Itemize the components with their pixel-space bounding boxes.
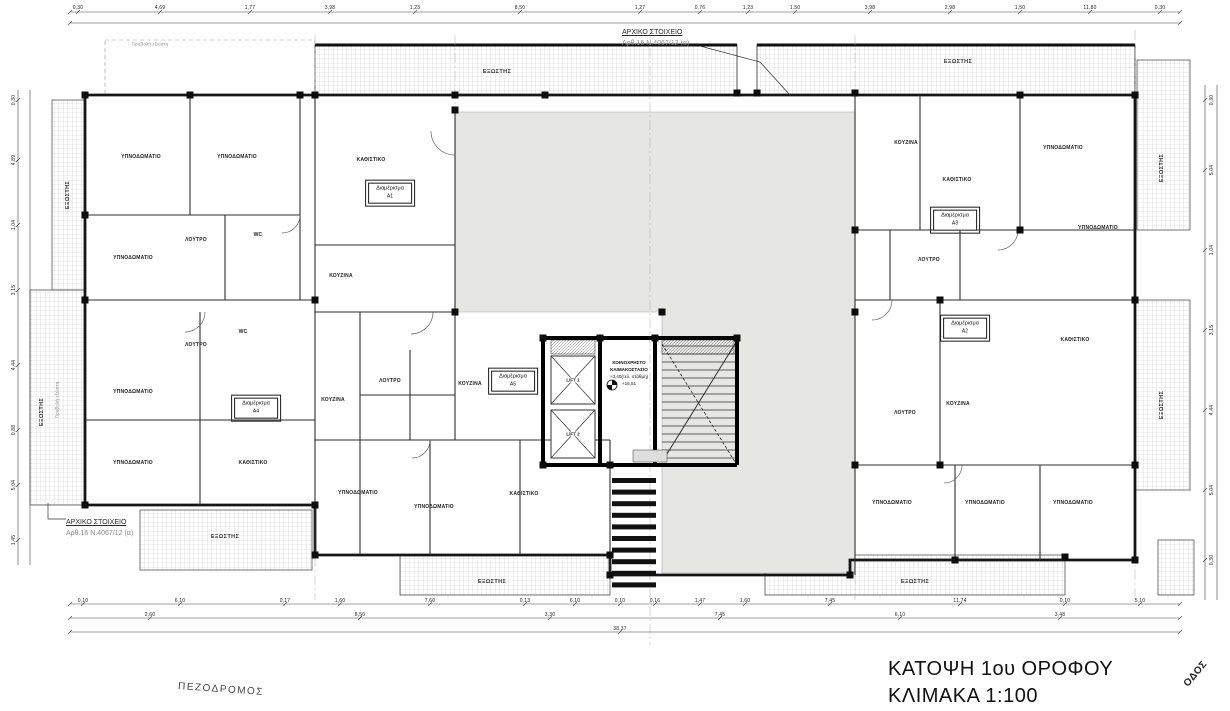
annotation-bottom-line1: ΑΡΧΙΚΟ ΣΤΟΙΧΕΙΟ [66, 518, 133, 529]
apartment-name: Διαμέρισμα [376, 186, 404, 194]
dimension-number: 2,60 [145, 612, 156, 618]
room-label: ΚΑΘΙΣΤΙΚΟ [943, 177, 972, 183]
dimension-number: 1,50 [1015, 5, 1026, 11]
core-level-2: +16,51 [596, 381, 662, 388]
room-label: ΚΑΘΙΣΤΙΚΟ [510, 491, 539, 497]
annotation-top-line2: Αρθ.16 Ν.4067/12 (α) [622, 39, 689, 50]
room-label: ΛΟΥΤΡΟ [379, 378, 401, 384]
dimension-number: 0,76 [695, 5, 706, 11]
balcony-label: ΕΞΩΣΤΗΣ [1159, 154, 1165, 182]
dimension-number: 1,27 [635, 5, 646, 11]
core-label-line1: ΚΟΙΝΟΧΡΗΣΤΟ [596, 360, 662, 367]
room-label: ΥΠΝΟΔΩΜΑΤΙΟ [965, 500, 1005, 506]
dimension-number: 8,50 [515, 5, 526, 11]
room-label: ΚΟΥΖΙΝΑ [321, 397, 345, 403]
core-label-line2: ΚΛΙΜΑΚΟΣΤΑΣΙΟ [596, 367, 662, 374]
dimension-number: 0,10 [615, 598, 626, 604]
room-label: ΥΠΝΟΔΩΜΑΤΙΟ [113, 255, 153, 261]
dimension-number: 1,50 [790, 5, 801, 11]
apartment-number: Α3 [941, 220, 969, 227]
dimension-number: 1,23 [410, 5, 421, 11]
room-label: ΥΠΝΟΔΩΜΑΤΙΟ [1078, 225, 1118, 231]
balcony-label: ΕΞΩΣΤΗΣ [944, 59, 972, 65]
room-label: ΚΟΥΖΙΝΑ [458, 381, 482, 387]
dimension-number: 1,47 [695, 598, 706, 604]
apartment-label: ΔιαμέρισμαΑ3 [933, 210, 977, 231]
apartment-number: Α5 [499, 381, 527, 388]
dimension-number: 38,37 [613, 626, 627, 632]
dimension-number: 0,30 [73, 5, 84, 11]
dimension-number: 0,16 [650, 598, 661, 604]
core-label: ΚΟΙΝΟΧΡΗΣΤΟ ΚΛΙΜΑΚΟΣΤΑΣΙΟ +3,40(τελ. στά… [596, 360, 662, 388]
dimension-number: 4,89 [11, 155, 17, 166]
apartment-name: Διαμέρισμα [499, 374, 527, 382]
room-label: ΛΟΥΤΡΟ [918, 257, 940, 263]
dimension-number: 11,80 [1083, 5, 1096, 11]
room-label: ΚΑΘΙΣΤΙΚΟ [239, 460, 268, 466]
floor-plan-drawing [0, 0, 1230, 711]
room-label: ΛΟΥΤΡΟ [185, 237, 207, 243]
room-label: ΛΟΥΤΡΟ [185, 342, 207, 348]
annotation-bottom: ΑΡΧΙΚΟ ΣΤΟΙΧΕΙΟ Αρθ.16 Ν.4067/12 (α) [66, 518, 133, 539]
lift-1-label: LIFT 1 [565, 378, 580, 383]
dimension-number: 6,10 [570, 598, 581, 604]
dimension-number: 6,10 [175, 598, 186, 604]
projection-label: Προβολή εξώστη [55, 382, 60, 419]
dimension-number: 3,48 [1055, 612, 1066, 618]
room-label: ΥΠΝΟΔΩΜΑΤΙΟ [217, 154, 257, 160]
dimension-number: 1,04 [1209, 245, 1215, 256]
drawing-title: ΚΑΤΟΨΗ 1ου ΟΡΟΦΟΥ ΚΛΙΜΑΚΑ 1:100 [888, 656, 1113, 710]
room-label: ΥΠΝΟΔΩΜΑΤΙΟ [872, 500, 912, 506]
dimension-number: 4,44 [11, 360, 17, 371]
dimension-number: 7,45 [715, 612, 726, 618]
dimension-number: 2,98 [945, 5, 956, 11]
dimension-number: 0,13 [520, 598, 531, 604]
dimension-number: 0,30 [1209, 95, 1215, 106]
dimension-number: 1,45 [11, 535, 17, 546]
dimension-number: 1,23 [743, 5, 754, 11]
annotation-top: ΑΡΧΙΚΟ ΣΤΟΙΧΕΙΟ Αρθ.16 Ν.4067/12 (α) [622, 28, 689, 49]
apartment-label: ΔιαμέρισμαΑ5 [491, 371, 535, 392]
dimension-number: 1,60 [335, 598, 346, 604]
room-label: ΚΟΥΖΙΝΑ [894, 140, 918, 146]
annotation-top-line1: ΑΡΧΙΚΟ ΣΤΟΙΧΕΙΟ [622, 28, 689, 39]
dimension-number: 4,69 [155, 5, 166, 11]
balcony-label: ΕΞΩΣΤΗΣ [211, 534, 239, 540]
dimension-number: 5,10 [1135, 598, 1146, 604]
balcony-label: ΕΞΩΣΤΗΣ [65, 181, 71, 209]
room-label: ΥΠΝΟΔΩΜΑΤΙΟ [113, 389, 153, 395]
dimension-number: 3,30 [545, 612, 556, 618]
dimension-number: 0,30 [1155, 5, 1166, 11]
dimension-number: 0,10 [1060, 598, 1071, 604]
dimension-number: 0,17 [280, 598, 291, 604]
dimension-number: 6,10 [895, 612, 906, 618]
dimension-number: 0,30 [1209, 555, 1215, 566]
apartment-number: Α1 [376, 193, 404, 200]
core-level-1: +3,40(τελ. στάθμη) [596, 374, 662, 381]
dimension-number: 7,60 [425, 598, 436, 604]
dimension-number: 11,74 [953, 598, 966, 604]
dimension-number: 0,30 [11, 95, 17, 106]
dimension-number: 8,50 [355, 612, 366, 618]
balcony-label: ΕΞΩΣΤΗΣ [483, 69, 511, 75]
balcony-label: ΕΞΩΣΤΗΣ [1159, 391, 1165, 419]
apartment-label: ΔιαμέρισμαΑ1 [368, 183, 412, 204]
room-label: ΥΠΝΟΔΩΜΑΤΙΟ [113, 460, 153, 466]
apartment-label: ΔιαμέρισμαΑ2 [943, 318, 987, 339]
dimension-number: 3,15 [1209, 325, 1215, 336]
dimension-number: 5,04 [1209, 485, 1215, 496]
dimension-number: 1,04 [11, 220, 17, 231]
apartment-name: Διαμέρισμα [951, 321, 979, 329]
floor-plan-sheet: ΥΠΝΟΔΩΜΑΤΙΟΥΠΝΟΔΩΜΑΤΙΟΥΠΝΟΔΩΜΑΤΙΟΚΑΘΙΣΤΙ… [0, 0, 1230, 711]
room-label: WC [239, 329, 248, 335]
annotation-bottom-line2: Αρθ.16 Ν.4067/12 (α) [66, 529, 133, 540]
balcony-label: ΕΞΩΣΤΗΣ [901, 579, 929, 585]
apartment-label: ΔιαμέρισμαΑ4 [234, 398, 278, 419]
room-label: ΚΟΥΖΙΝΑ [946, 401, 970, 407]
balcony-label: ΕΞΩΣΤΗΣ [478, 579, 506, 585]
room-label: ΚΑΘΙΣΤΙΚΟ [357, 157, 386, 163]
dimension-number: 3,98 [325, 5, 336, 11]
room-label: WC [254, 232, 263, 238]
room-label: ΚΟΥΖΙΝΑ [329, 273, 353, 279]
apartment-number: Α2 [951, 328, 979, 335]
apartment-name: Διαμέρισμα [242, 401, 270, 409]
title-line1: ΚΑΤΟΨΗ 1ου ΟΡΟΦΟΥ [888, 656, 1113, 683]
room-label: ΛΟΥΤΡΟ [894, 410, 916, 416]
room-label: ΥΠΝΟΔΩΜΑΤΙΟ [1053, 500, 1093, 506]
apartment-name: Διαμέρισμα [941, 213, 969, 221]
room-label: ΥΠΝΟΔΩΜΑΤΙΟ [338, 490, 378, 496]
lift-2-label: LIFT 2 [565, 432, 580, 437]
dimension-number: 5,04 [11, 480, 17, 491]
apartment-number: Α4 [242, 408, 270, 415]
dimension-number: 0,88 [11, 425, 17, 436]
projection-label: Προβολή εξώστη [132, 42, 169, 47]
balcony-label: ΕΞΩΣΤΗΣ [39, 398, 45, 426]
dimension-number: 0,10 [78, 598, 89, 604]
room-label: ΥΠΝΟΔΩΜΑΤΙΟ [414, 504, 454, 510]
dimension-number: 1,60 [740, 598, 751, 604]
room-label: ΥΠΝΟΔΩΜΑΤΙΟ [1043, 145, 1083, 151]
room-label: ΚΑΘΙΣΤΙΚΟ [1061, 337, 1090, 343]
dimension-number: 1,77 [245, 5, 256, 11]
title-line2: ΚΛΙΜΑΚΑ 1:100 [888, 683, 1113, 710]
dimension-number: 5,04 [1209, 165, 1215, 176]
dimension-number: 4,44 [1209, 405, 1215, 416]
dimension-number: 3,15 [11, 285, 17, 296]
dimension-number: 3,98 [865, 5, 876, 11]
room-label: ΥΠΝΟΔΩΜΑΤΙΟ [121, 154, 161, 160]
dimension-number: 7,45 [825, 598, 836, 604]
